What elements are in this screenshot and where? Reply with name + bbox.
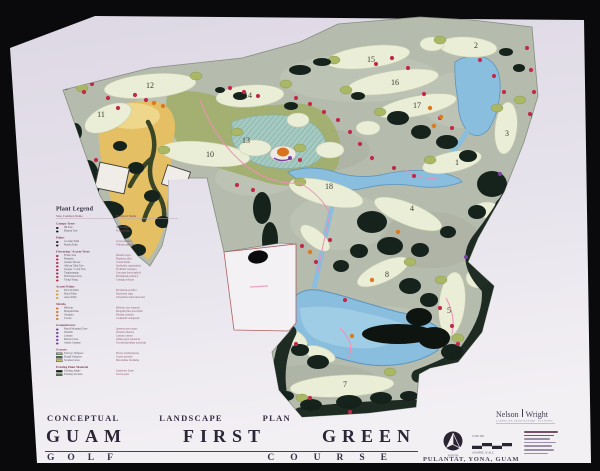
flowering-tree-dot bbox=[422, 92, 426, 96]
flowering-tree-dot bbox=[144, 98, 148, 102]
legend-item-icon bbox=[56, 374, 64, 377]
hole-number: 1 bbox=[455, 158, 459, 167]
hole-number: 12 bbox=[146, 81, 154, 90]
jungle-blob bbox=[357, 211, 387, 233]
purple-accent-dot bbox=[498, 172, 502, 176]
jungle-blob bbox=[113, 141, 127, 151]
hole-number: 8 bbox=[385, 270, 389, 279]
putting-green bbox=[514, 96, 526, 104]
jungle-blob bbox=[399, 278, 421, 294]
legend-item: Manila PalmVeitchia merrillii bbox=[56, 244, 178, 248]
hole-number: 4 bbox=[410, 204, 414, 213]
firm-name-right: Wright bbox=[526, 410, 548, 419]
fairway bbox=[356, 121, 380, 135]
legend-item-icon bbox=[56, 311, 64, 313]
flowering-tree-dot bbox=[328, 238, 332, 242]
legend-item: CrotonCodiaeum variegatum bbox=[56, 317, 178, 321]
jungle-blob bbox=[350, 244, 368, 258]
flowering-tree-dot bbox=[322, 110, 326, 114]
firm-address-line bbox=[524, 438, 550, 440]
putting-green bbox=[280, 80, 292, 88]
putting-green bbox=[190, 72, 202, 80]
putting-green bbox=[294, 178, 306, 186]
legend-section: GrassesFairway TurfgrassTifway bermudagr… bbox=[56, 348, 178, 363]
course-title: GUAM FIRST GREEN bbox=[46, 426, 416, 447]
putting-green bbox=[424, 156, 436, 164]
kicker-word: PLAN bbox=[263, 413, 291, 423]
flowering-tree-dot bbox=[116, 106, 120, 110]
flowering-tree-dot bbox=[392, 166, 396, 170]
hole-number: 16 bbox=[391, 78, 399, 87]
legend-item-icon bbox=[56, 262, 64, 264]
legend-section: Accent PalmsFiji Fan PalmPritchardia pac… bbox=[56, 285, 178, 300]
legend-item-icon bbox=[56, 272, 64, 274]
flowering-tree-dot bbox=[308, 102, 312, 106]
legend-section-title: Groundcovers bbox=[56, 324, 178, 328]
legend-item-icon bbox=[56, 297, 64, 299]
legend-section-title: Grasses bbox=[56, 348, 178, 352]
legend-common-name: Asiatic Jasmine bbox=[64, 342, 116, 346]
legend-botanical-name: Sword grass bbox=[116, 373, 129, 377]
legend-section: PalmsCoconut PalmCocos nuciferaManila Pa… bbox=[56, 236, 178, 247]
jungle-blob bbox=[307, 355, 329, 369]
flowering-tree-dot bbox=[529, 68, 533, 72]
legend-section: Canopy TreesIfil TreeIntsia bijugaBanyan… bbox=[56, 222, 178, 233]
orange-accent-dot bbox=[439, 115, 443, 119]
orange-accent-dot bbox=[428, 106, 432, 110]
legend-botanical-name: Codiaeum variegatum bbox=[116, 317, 139, 321]
legend-item-icon bbox=[56, 356, 64, 359]
jungle-blob bbox=[377, 237, 403, 255]
flowering-tree-dot bbox=[314, 260, 318, 264]
putting-green bbox=[340, 86, 352, 94]
hole-number: 10 bbox=[206, 150, 214, 159]
legend-item-icon bbox=[56, 339, 64, 341]
hole-number: 15 bbox=[367, 55, 375, 64]
flowering-tree-dot bbox=[450, 126, 454, 130]
putting-green bbox=[404, 258, 416, 266]
firm-divider bbox=[522, 409, 523, 417]
clubhouse bbox=[270, 146, 296, 162]
flowering-tree-dot bbox=[308, 396, 312, 400]
putting-green bbox=[491, 104, 503, 112]
legend-item-icon bbox=[56, 265, 64, 267]
legend-item: Ylang-YlangCananga odorata bbox=[56, 279, 178, 283]
hole-number: 5 bbox=[447, 306, 451, 315]
jungle-blob bbox=[400, 391, 418, 401]
subtitle-word: COURSE bbox=[267, 453, 403, 463]
hole-number: 11 bbox=[97, 110, 105, 119]
jungle-blob bbox=[499, 48, 513, 56]
jungle-blob bbox=[291, 344, 309, 356]
legend-section: GroundcoversBeach Morning GloryIpomoea p… bbox=[56, 324, 178, 346]
jungle-blob bbox=[513, 64, 525, 72]
putting-green bbox=[158, 146, 170, 154]
legend-botanical-name: Cananga odorata bbox=[116, 279, 134, 283]
fairway bbox=[287, 113, 309, 127]
legend-item-icon bbox=[56, 269, 64, 271]
flowering-tree-dot bbox=[256, 94, 260, 98]
legend-item-icon bbox=[56, 307, 64, 309]
flowering-tree-dot bbox=[343, 298, 347, 302]
legend-item-icon bbox=[56, 370, 64, 373]
firm-rule bbox=[496, 424, 555, 425]
hole-number: 18 bbox=[325, 182, 333, 191]
legend-item-icon bbox=[56, 360, 64, 363]
jungle-blob bbox=[313, 58, 331, 66]
jungle-blob bbox=[333, 260, 349, 272]
flowering-tree-dot bbox=[450, 324, 454, 328]
orange-accent-dot bbox=[396, 230, 400, 234]
legend-item-icon bbox=[56, 335, 64, 337]
legend-item: Areca PalmChrysalidocarpus lutescens bbox=[56, 296, 178, 300]
flowering-tree-dot bbox=[492, 74, 496, 78]
legend-item-icon bbox=[56, 279, 64, 281]
flowering-tree-dot bbox=[348, 410, 352, 414]
legend-item: Asiatic JasmineTrachelospermum asiaticum bbox=[56, 342, 178, 346]
flowering-tree-dot bbox=[358, 142, 362, 146]
flowering-tree-dot bbox=[456, 342, 460, 346]
fairway bbox=[316, 142, 344, 158]
flowering-tree-dot bbox=[532, 90, 536, 94]
jungle-blob bbox=[436, 135, 458, 149]
jungle-blob bbox=[128, 162, 144, 174]
putting-green bbox=[374, 108, 386, 116]
orange-accent-dot bbox=[161, 104, 165, 108]
legend-botanical-name: Chrysalidocarpus lutescens bbox=[116, 296, 145, 300]
flowering-tree-dot bbox=[235, 183, 239, 187]
legend-item-icon bbox=[56, 244, 64, 246]
flowering-tree-dot bbox=[82, 90, 86, 94]
legend-botanical-name: Miscanthus floridulus bbox=[116, 359, 139, 363]
legend-common-name: Savanna Grass bbox=[64, 359, 116, 363]
jungle-blob bbox=[440, 226, 456, 238]
legend-botanical-name: Ficus prolixa bbox=[116, 230, 130, 234]
legend-item-icon bbox=[56, 258, 64, 260]
legend-common-name: Croton bbox=[64, 317, 116, 321]
location-text: PULANTAT, YONA, GUAM bbox=[423, 456, 519, 463]
putting-green bbox=[231, 128, 243, 136]
legend-section-title: Shrubs bbox=[56, 303, 178, 307]
firm-address-line bbox=[524, 435, 554, 437]
putting-green bbox=[384, 368, 396, 376]
jungle-blob bbox=[351, 92, 365, 100]
flowering-tree-dot bbox=[502, 90, 506, 94]
flowering-tree-dot bbox=[528, 112, 532, 116]
putting-green bbox=[435, 276, 447, 284]
legend-botanical-name: Trachelospermum asiaticum bbox=[116, 342, 146, 346]
legend-section: ShrubsHibiscusHibiscus rosa-sinensisBoug… bbox=[56, 303, 178, 321]
legend-item-icon bbox=[56, 227, 64, 229]
jungle-blob bbox=[411, 125, 431, 139]
kicker-word: LANDSCAPE bbox=[159, 413, 223, 423]
jungle-blob bbox=[215, 87, 225, 93]
legend-common-name: Ylang-Ylang bbox=[64, 279, 116, 283]
jungle-blob bbox=[289, 65, 311, 75]
legend-item-icon bbox=[56, 314, 64, 316]
legend-section: Flowering / Accent TreesFlame TreeDeloni… bbox=[56, 250, 178, 282]
jungle-blob bbox=[387, 111, 409, 125]
flowering-tree-dot bbox=[106, 96, 110, 100]
legend-item: Banyan TreeFicus prolixa bbox=[56, 230, 178, 234]
legend-item-icon bbox=[56, 353, 64, 356]
firm-logo: Nelson Wright LANDSCAPE ARCHITECTURE · P… bbox=[496, 409, 572, 430]
legend-item-icon bbox=[56, 230, 64, 232]
hole-number: 7 bbox=[343, 380, 347, 389]
firm-address-line bbox=[524, 449, 554, 451]
flowering-tree-dot bbox=[294, 342, 298, 346]
firm-address-line bbox=[524, 431, 558, 433]
legend-col1-header: Size, Common Name bbox=[56, 215, 116, 219]
firm-address-line bbox=[524, 442, 556, 444]
legend-item-icon bbox=[56, 342, 64, 344]
legend-item: Savanna GrassMiscanthus floridulus bbox=[56, 359, 178, 363]
legend-common-name: Areca Palm bbox=[64, 296, 116, 300]
jungle-blob bbox=[411, 243, 429, 257]
hole-number: 13 bbox=[242, 136, 250, 145]
legend-item-icon bbox=[56, 255, 64, 257]
flowering-tree-dot bbox=[390, 56, 394, 60]
legend-section: Existing Plant MaterialExisting JungleLi… bbox=[56, 366, 178, 377]
legend-item: Existing SavannaSword grass bbox=[56, 373, 178, 377]
legend-item-icon bbox=[56, 332, 64, 334]
purple-accent-dot bbox=[288, 156, 292, 160]
flowering-tree-dot bbox=[370, 156, 374, 160]
putting-green bbox=[452, 334, 464, 342]
legend-section-title: Flowering / Accent Trees bbox=[56, 250, 178, 254]
title-kicker: CONCEPTUAL LANDSCAPE PLAN bbox=[47, 413, 291, 423]
firm-address-block bbox=[524, 431, 558, 456]
flowering-tree-dot bbox=[438, 306, 442, 310]
orange-accent-dot bbox=[152, 101, 156, 105]
title-word: FIRST bbox=[183, 426, 266, 447]
course-subtitle: GOLF COURSE bbox=[47, 453, 403, 463]
firm-address-line bbox=[524, 445, 552, 447]
flowering-tree-dot bbox=[406, 66, 410, 70]
parcel-outline bbox=[224, 244, 296, 331]
kicker-word: CONCEPTUAL bbox=[47, 413, 120, 423]
title-divider-rule bbox=[45, 451, 418, 452]
legend-item-icon bbox=[56, 328, 64, 330]
jungle-blob bbox=[468, 205, 486, 219]
legend-section-title: Existing Plant Material bbox=[56, 366, 178, 370]
flowering-tree-dot bbox=[348, 130, 352, 134]
orange-accent-dot bbox=[432, 124, 436, 128]
legend-column-headers: Size, Common Name Botanical Name bbox=[56, 215, 178, 220]
putting-green bbox=[294, 144, 306, 152]
subtitle-word: GOLF bbox=[47, 453, 126, 463]
orange-accent-dot bbox=[350, 334, 354, 338]
legend-item-icon bbox=[56, 293, 64, 295]
firm-name-left: Nelson bbox=[496, 410, 519, 419]
jungle-blob bbox=[144, 190, 160, 202]
jungle-blob bbox=[253, 192, 271, 224]
firm-address-line bbox=[524, 453, 548, 455]
flowering-tree-dot bbox=[94, 158, 98, 162]
flowering-tree-dot bbox=[478, 58, 482, 62]
flowering-tree-dot bbox=[336, 118, 340, 122]
legend-item-icon bbox=[56, 276, 64, 278]
flowering-tree-dot bbox=[525, 46, 529, 50]
scale-caption: GRAPHIC SCALE bbox=[472, 452, 494, 455]
purple-accent-dot bbox=[464, 255, 468, 259]
flowering-tree-dot bbox=[298, 158, 302, 162]
title-word: GUAM bbox=[46, 426, 127, 447]
legend-title: Plant Legend bbox=[56, 205, 178, 213]
jungle-blob bbox=[477, 171, 507, 197]
flowering-tree-dot bbox=[228, 86, 232, 90]
title-word: GREEN bbox=[322, 426, 416, 447]
hole-number: 17 bbox=[413, 101, 421, 110]
hole-number: 2 bbox=[474, 41, 478, 50]
legend-item-icon bbox=[56, 290, 64, 292]
plan-photo: 1234578101112131415161718 NORTH 0 200 40… bbox=[0, 0, 600, 471]
jungle-blob bbox=[420, 293, 438, 307]
flowering-tree-dot bbox=[300, 244, 304, 248]
orange-accent-dot bbox=[370, 278, 374, 282]
legend-section-title: Accent Palms bbox=[56, 285, 178, 289]
flowering-tree-dot bbox=[251, 188, 255, 192]
legend-common-name: Banyan Tree bbox=[64, 230, 116, 234]
scale-ticks: 0 200 400 bbox=[472, 434, 485, 438]
legend-section-title: Palms bbox=[56, 236, 178, 240]
flowering-tree-dot bbox=[133, 93, 137, 97]
hole-number: 3 bbox=[505, 129, 509, 138]
jungle-blob bbox=[459, 150, 477, 162]
legend-col2-header: Botanical Name bbox=[116, 215, 136, 219]
legend-botanical-name: Veitchia merrillii bbox=[116, 244, 134, 248]
jungle-blob bbox=[284, 102, 298, 110]
orange-accent-dot bbox=[308, 250, 312, 254]
legend-item-icon bbox=[56, 318, 64, 320]
hole-number: 14 bbox=[244, 91, 252, 100]
flowering-tree-dot bbox=[412, 174, 416, 178]
putting-green bbox=[434, 36, 446, 44]
flowering-tree-dot bbox=[294, 96, 298, 100]
legend-section-title: Canopy Trees bbox=[56, 222, 178, 226]
firm-tagline: LANDSCAPE ARCHITECTURE · PLANNING bbox=[496, 420, 572, 423]
legend-item-icon bbox=[56, 241, 64, 243]
legend-common-name: Existing Savanna bbox=[64, 373, 116, 377]
legend-common-name: Manila Palm bbox=[64, 244, 116, 248]
